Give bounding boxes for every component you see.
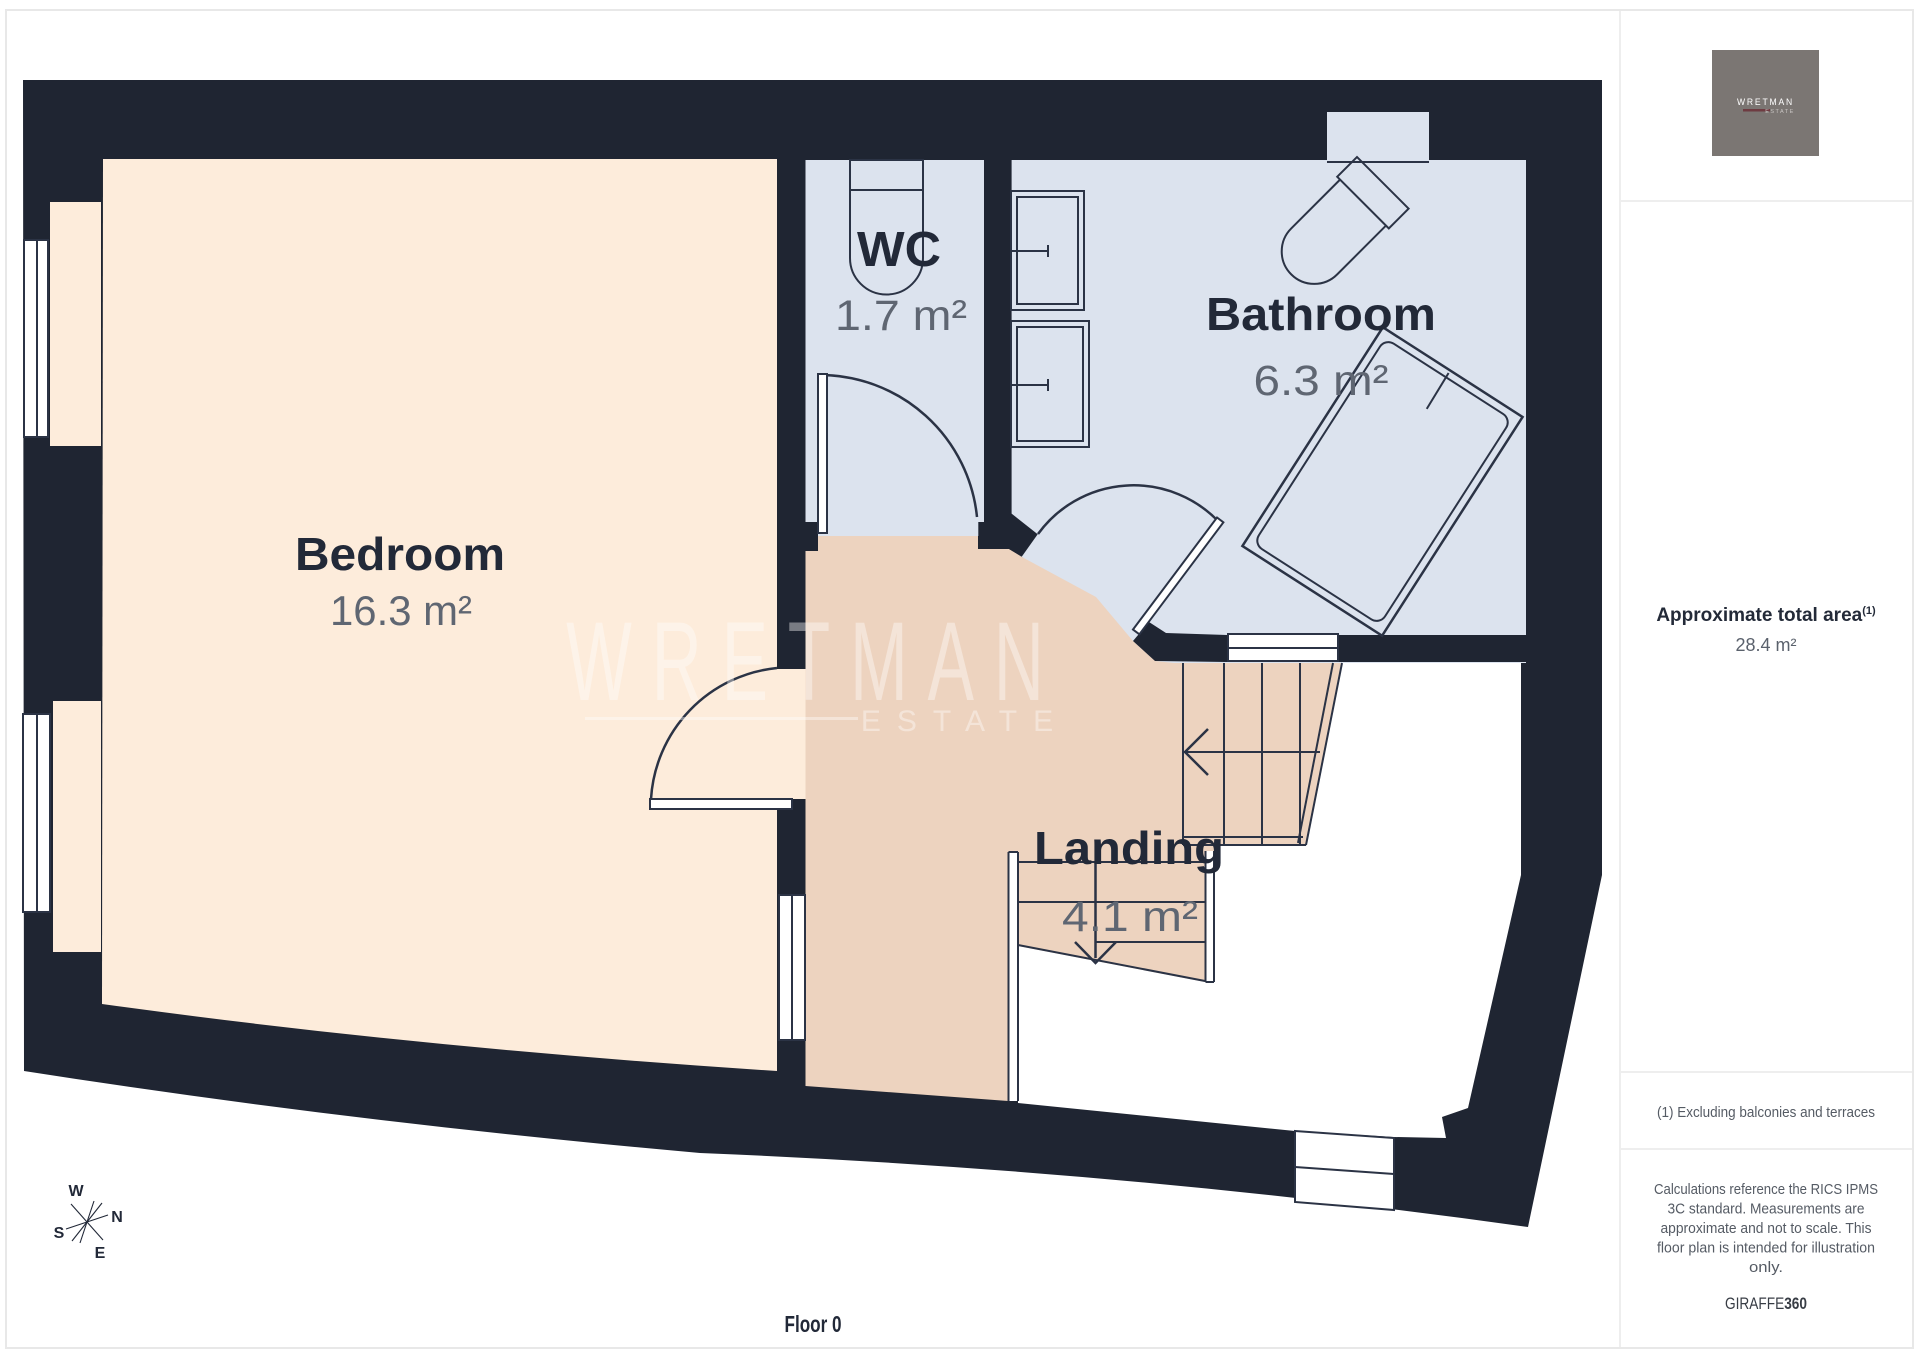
svg-text:N: N	[111, 1209, 123, 1226]
svg-text:3C standard. Measurements are: 3C standard. Measurements are	[1668, 1201, 1865, 1218]
svg-text:Bedroom: Bedroom	[295, 528, 505, 580]
svg-text:Floor 0: Floor 0	[785, 1311, 842, 1337]
svg-text:1.7 m²: 1.7 m²	[835, 292, 967, 340]
svg-text:16.3 m²: 16.3 m²	[330, 587, 472, 634]
svg-text:only.: only.	[1749, 1259, 1783, 1276]
svg-text:ESTATE: ESTATE	[1765, 109, 1795, 115]
svg-text:Landing: Landing	[1034, 822, 1224, 874]
svg-text:Calculations reference the RIC: Calculations reference the RICS IPMS	[1654, 1181, 1878, 1198]
svg-text:4.1 m²: 4.1 m²	[1062, 893, 1198, 941]
svg-text:Bathroom: Bathroom	[1206, 288, 1436, 340]
svg-text:Approximate total area(1): Approximate total area(1)	[1656, 605, 1876, 626]
svg-text:approximate and not to scale.: approximate and not to scale. This	[1661, 1220, 1872, 1237]
svg-text:floor plan is intended for ill: floor plan is intended for illustration	[1657, 1240, 1875, 1257]
svg-text:WRETMAN: WRETMAN	[1737, 97, 1794, 108]
svg-text:GIRAFFE360: GIRAFFE360	[1725, 1294, 1807, 1313]
svg-text:28.4 m²: 28.4 m²	[1735, 635, 1796, 655]
svg-text:E: E	[95, 1245, 106, 1262]
svg-text:WC: WC	[857, 223, 941, 277]
svg-text:(1) Excluding balconies and te: (1) Excluding balconies and terraces	[1657, 1104, 1875, 1121]
svg-text:6.3 m²: 6.3 m²	[1254, 357, 1389, 405]
svg-text:W: W	[68, 1183, 84, 1200]
svg-text:S: S	[54, 1225, 65, 1242]
svg-text:ESTATE: ESTATE	[861, 705, 1069, 738]
